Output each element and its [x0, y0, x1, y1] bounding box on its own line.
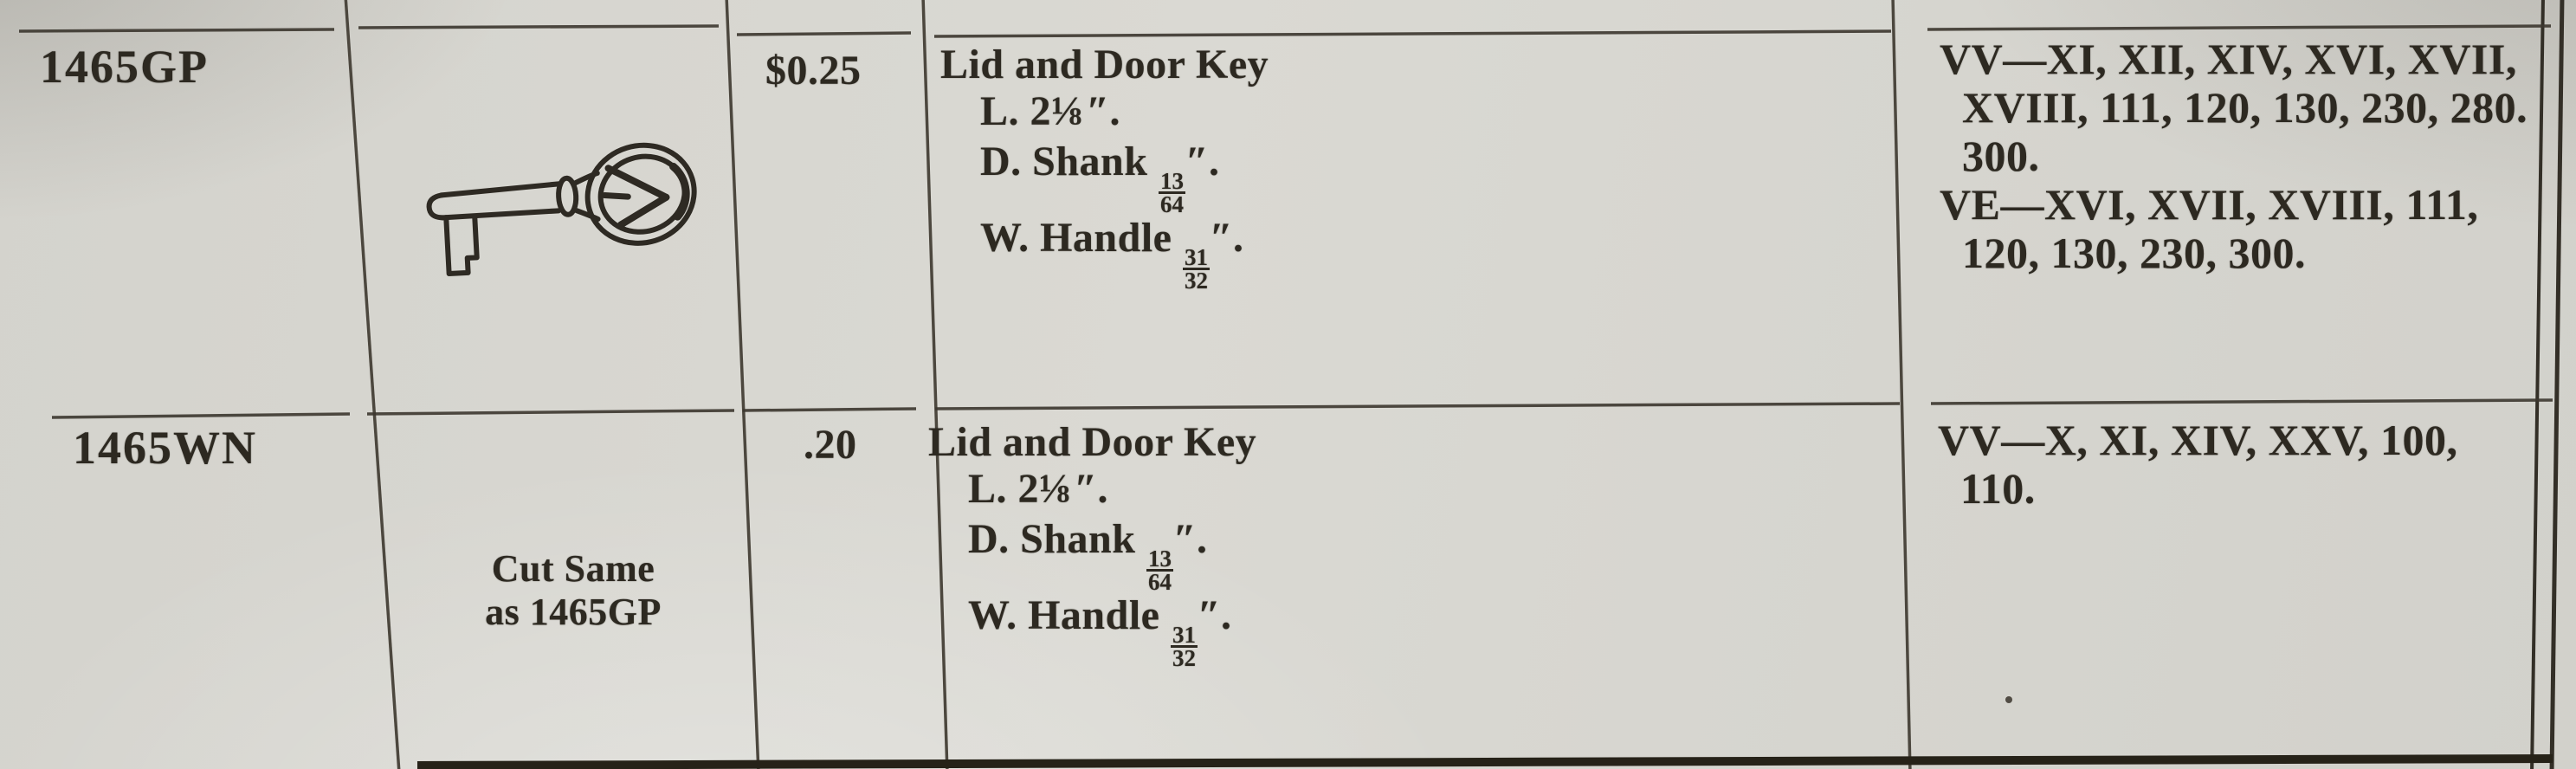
dimension-unit: ″. — [1075, 466, 1109, 512]
row-rule-2b — [367, 410, 734, 414]
description-title: Lid and Door Key — [940, 42, 1269, 88]
dimension-unit: ″. — [1087, 88, 1121, 134]
row-rule-2d — [935, 404, 1900, 409]
model-line: 110. — [1960, 464, 2458, 513]
dimension-line-shank: D. Shank 1364″. — [980, 139, 1269, 215]
model-line: VE—XVI, XVII, XVIII, 111, — [1940, 180, 2528, 229]
right-border-inner — [2552, 0, 2562, 769]
fraction: 1364 — [1159, 171, 1185, 215]
key-shaft-top — [442, 184, 560, 195]
row-rule-1c — [737, 33, 911, 35]
description: Lid and Door Key L. 2⅛″. D. Shank 1364″.… — [928, 419, 1256, 669]
right-border-outer — [2532, 0, 2543, 769]
description-title: Lid and Door Key — [928, 419, 1256, 466]
dimension-line-handle: W. Handle 3132″. — [968, 592, 1256, 669]
cut-same-note-line: as 1465GP — [461, 591, 686, 634]
column-rule-1 — [345, 0, 399, 769]
key-shaft-bottom — [442, 210, 558, 217]
key-bow-spoke-2 — [619, 197, 667, 225]
dimension-text: D. Shank — [980, 139, 1159, 184]
dimension-text: D. Shank — [968, 516, 1146, 562]
column-rule-2 — [726, 0, 759, 769]
cut-same-note: Cut Same as 1465GP — [461, 547, 686, 634]
catalog-page: 1465GP $0.25 Lid and Door Key L. 2⅛″. D.… — [0, 0, 2576, 769]
row-rule-2e — [1931, 400, 2553, 404]
row-rule-1b — [358, 26, 719, 28]
fraction: 3132 — [1183, 247, 1210, 291]
description: Lid and Door Key L. 2⅛″. D. Shank 1364″.… — [940, 42, 1269, 291]
cut-same-note-line: Cut Same — [461, 547, 686, 591]
part-number: 1465WN — [73, 421, 257, 475]
column-rule-4 — [1893, 0, 1910, 769]
price: $0.25 — [765, 47, 862, 94]
row-rule-2c — [743, 409, 916, 410]
dimension-unit: ″. — [1210, 215, 1244, 261]
key-bow-crescent — [674, 166, 688, 217]
dimension-text: W. Handle — [980, 215, 1183, 261]
dimension-unit: ″. — [1185, 139, 1220, 184]
row-rule-1d — [934, 31, 1891, 36]
models-list: VV—XI, XII, XIV, XVI, XVII, XVIII, 111, … — [1940, 35, 2528, 277]
key-bow-spoke-3 — [604, 194, 628, 197]
part-number: 1465GP — [40, 40, 209, 94]
row-rule-1a — [19, 29, 334, 31]
model-line: VV—XI, XII, XIV, XVI, XVII, — [1940, 35, 2528, 83]
ink-speck — [2005, 696, 2012, 703]
key-tip — [429, 195, 442, 218]
key-bit — [446, 216, 477, 274]
dimension-unit: ″. — [1173, 516, 1208, 562]
dimension-line-handle: W. Handle 3132″. — [980, 215, 1269, 291]
model-line: XVIII, 111, 120, 130, 230, 280. — [1962, 83, 2528, 132]
row-rule-2a — [52, 414, 350, 417]
dimension-text: L. 2⅛ — [980, 88, 1083, 134]
dimension-text: W. Handle — [968, 592, 1171, 638]
fraction: 3132 — [1171, 624, 1198, 669]
models-list: VV—X, XI, XIV, XXV, 100, 110. — [1938, 416, 2458, 513]
dimension-line-length: L. 2⅛″. — [968, 466, 1256, 516]
dimension-line-shank: D. Shank 1364″. — [968, 516, 1256, 592]
fraction: 1364 — [1146, 548, 1173, 592]
row-rule-1e — [1927, 26, 2551, 29]
key-illustration — [416, 138, 712, 315]
model-line: VV—X, XI, XIV, XXV, 100, — [1938, 416, 2458, 464]
model-line: 300. — [1962, 132, 2528, 180]
bottom-rule — [417, 759, 2553, 766]
model-line: 120, 130, 230, 300. — [1962, 229, 2528, 277]
dimension-text: L. 2⅛ — [968, 466, 1071, 512]
dimension-line-length: L. 2⅛″. — [980, 88, 1269, 139]
price: .20 — [804, 421, 857, 469]
dimension-unit: ″. — [1198, 592, 1232, 638]
